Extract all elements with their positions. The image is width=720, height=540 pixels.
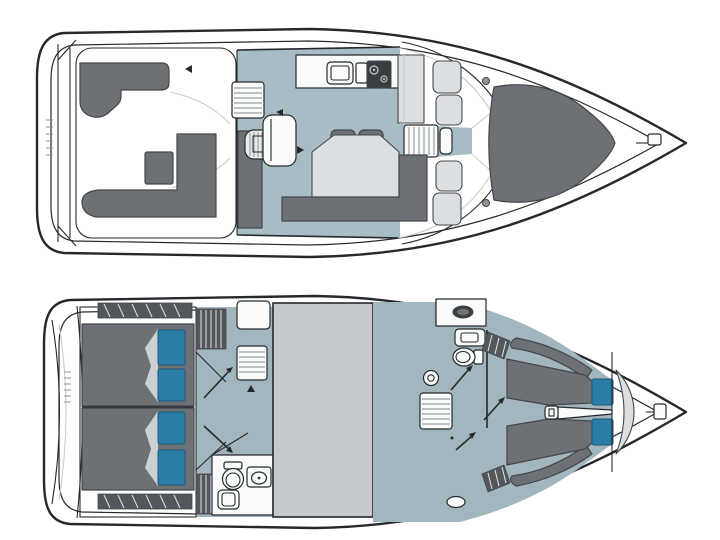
- latch-dot: [451, 437, 454, 440]
- drain-board: [356, 63, 367, 83]
- lower-deck-plan: [44, 296, 686, 528]
- wardrobe-cabinet: [237, 301, 270, 329]
- berth-pillow: [158, 330, 185, 365]
- yacht-deck-plans: [0, 0, 720, 540]
- berth-pillow: [158, 369, 185, 401]
- main-deck-plan: [37, 29, 686, 257]
- engine-compartment: [273, 303, 373, 517]
- center-handle: [545, 406, 558, 419]
- burner-dot: [373, 69, 375, 71]
- dinette-table: [312, 135, 399, 197]
- porthole: [424, 371, 439, 386]
- v-berth-pillow: [592, 379, 613, 405]
- burner-dot: [383, 78, 385, 80]
- mirror-locker: [455, 329, 485, 346]
- side-window-hatching: [98, 494, 192, 509]
- companionway-steps: [237, 346, 267, 380]
- cockpit-table: [145, 152, 173, 184]
- walkway-steps: [404, 125, 452, 157]
- aft-cabin: [80, 303, 196, 517]
- tall-cabinet: [398, 55, 424, 123]
- deck-hardware-dot: [483, 78, 490, 85]
- deck-hardware-dot: [483, 200, 490, 207]
- berth-pillow: [158, 450, 185, 485]
- galley-stove: [367, 61, 391, 88]
- faucet-dot: [258, 477, 261, 480]
- canvas: [0, 0, 720, 540]
- side-window-hatching: [98, 303, 192, 318]
- walkway-step-pad: [440, 128, 452, 154]
- v-berth-pillow: [592, 419, 613, 445]
- basin-inner: [457, 309, 469, 315]
- deck-hatch-oval: [447, 497, 465, 508]
- berth-pillow: [158, 412, 185, 444]
- helm-seat: [263, 115, 296, 166]
